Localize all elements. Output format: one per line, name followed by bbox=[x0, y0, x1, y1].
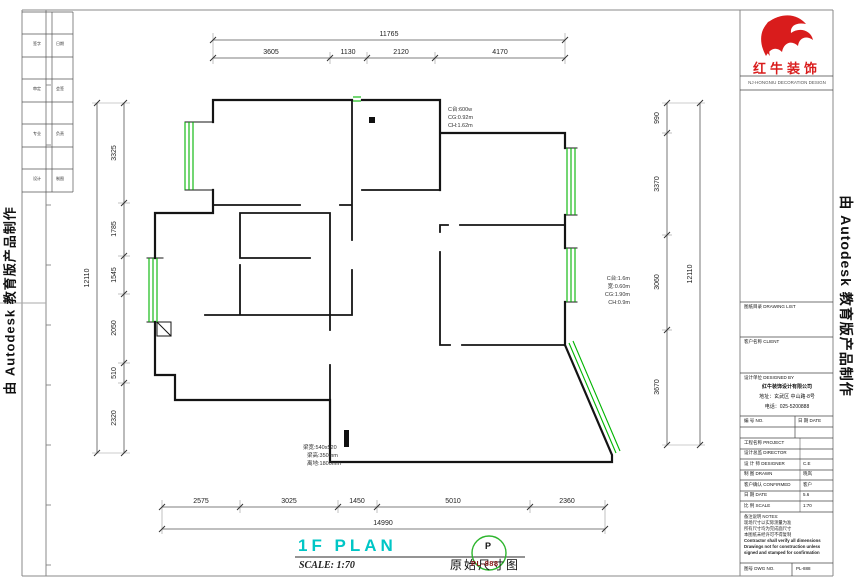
note-line: 现场尺寸以实际测量为准 bbox=[744, 521, 791, 525]
revision-cell: 审定 bbox=[25, 87, 49, 91]
dim-label: 990 bbox=[654, 96, 664, 140]
tb-mini-right: 日 期 DATE bbox=[798, 419, 821, 424]
dim-label: 3060 bbox=[654, 260, 664, 304]
dim-label: 3605 bbox=[253, 49, 289, 56]
brand-subtitle: NJ·HONGNIU DECORATION DESIGN bbox=[743, 81, 831, 86]
dim-label: 2575 bbox=[183, 498, 219, 505]
scale-label: SCALE: 1:70 bbox=[299, 561, 355, 571]
dim-total-left: 12110 bbox=[84, 256, 94, 300]
dim-label: 1785 bbox=[111, 207, 121, 251]
tb-footer-left: 图号 DWG NO. bbox=[744, 567, 775, 572]
dim-label: 2360 bbox=[549, 498, 585, 505]
tb-row-label: 工程名称 PROJECT bbox=[744, 441, 784, 446]
tb-row-value: 客户 bbox=[803, 483, 812, 488]
company-phone: 电话：025-5200888 bbox=[744, 405, 830, 410]
beam-annotation-line: 梁宽:540x520 bbox=[303, 446, 337, 452]
tb-row-label: 比 例 SCALE bbox=[744, 504, 770, 509]
note-line: signed and stamped for confirmation bbox=[744, 551, 820, 555]
tb-footer-right: PL-888 bbox=[796, 567, 811, 572]
tb-row-label: 制 图 DRAWN bbox=[744, 472, 772, 477]
dim-label: 2050 bbox=[111, 306, 121, 350]
tb-section-label: 设计单位 DESIGNED BY bbox=[744, 376, 794, 381]
tb-row-label: 日 期 DATE bbox=[744, 493, 767, 498]
note-line: 所有尺寸均为完成面尺寸 bbox=[744, 527, 791, 531]
note-line: Contractor shall verify all dimensions bbox=[744, 539, 821, 543]
revision-cell: 专业 bbox=[25, 132, 49, 136]
tb-row-label: 设计总监 DIRECTOR bbox=[744, 451, 787, 456]
window-annotation-line: CG:0.92m bbox=[448, 116, 473, 122]
dim-total-bottom: 14990 bbox=[365, 520, 401, 527]
brand-name: 红牛装饰 bbox=[743, 62, 831, 75]
revision-cell: 制图 bbox=[50, 177, 70, 181]
dim-label: 1545 bbox=[111, 253, 121, 297]
tb-section-label: 图纸目录 DRAWING LIST bbox=[744, 305, 796, 310]
floor-plan-walls bbox=[147, 100, 612, 462]
dim-label: 3025 bbox=[271, 498, 307, 505]
window-annotation-line: CH:1.62m bbox=[448, 124, 473, 130]
revision-cell: 日期 bbox=[50, 42, 70, 46]
stamp-letter: P bbox=[485, 542, 491, 551]
dim-label: 3370 bbox=[654, 162, 664, 206]
window-annotation-line: C台:600w bbox=[448, 108, 472, 114]
note-line: Drawings not for construction unless bbox=[744, 545, 820, 549]
window-annotation-line: CH:0.9m bbox=[596, 301, 630, 307]
drawing-sheet: 由 Autodesk 教育版产品制作 由 Autodesk 教育版产品制作 签字… bbox=[0, 0, 860, 580]
revision-cell: 负责 bbox=[50, 132, 70, 136]
stamp-code: PL-888 bbox=[471, 560, 499, 568]
autodesk-watermark-left: 由 Autodesk 教育版产品制作 bbox=[4, 161, 17, 441]
dim-label: 1130 bbox=[330, 49, 366, 56]
tb-row-value: C.E bbox=[803, 462, 811, 467]
tb-row-value: 1:70 bbox=[803, 504, 812, 509]
beam-annotation-line: 梁高:350mm bbox=[307, 454, 338, 460]
revision-table-grid bbox=[22, 12, 73, 192]
revision-cell: 签字 bbox=[25, 42, 49, 46]
cad-linework bbox=[0, 0, 860, 580]
dim-total-right: 12110 bbox=[687, 252, 697, 296]
window-annotation-line: C台:1.6m bbox=[596, 277, 630, 283]
tb-row-value: 5.6 bbox=[803, 493, 809, 498]
tb-row-label: 客户确认 CONFIRMED bbox=[744, 483, 791, 488]
revision-cell: 设计 bbox=[25, 177, 49, 181]
revision-cell: 会签 bbox=[50, 87, 70, 91]
note-line: 本图纸未经许可不得复制 bbox=[744, 533, 791, 537]
dim-label: 2320 bbox=[111, 396, 121, 440]
dim-label: 3325 bbox=[111, 131, 121, 175]
dim-total-top: 11765 bbox=[371, 31, 407, 38]
dim-label: 3670 bbox=[654, 365, 664, 409]
title-block-grid bbox=[740, 76, 833, 576]
tb-row-value: 晓岚 bbox=[803, 472, 812, 477]
tb-row-label: 设 计 师 DESIGNER bbox=[744, 462, 785, 467]
bull-logo-icon bbox=[761, 15, 813, 56]
dim-label: 2120 bbox=[383, 49, 419, 56]
tb-section-label: 客户名称 CLIENT bbox=[744, 340, 779, 345]
beam-annotation-line: 离地:1800mm bbox=[307, 462, 341, 468]
notes-title: 备注说明 NOTES: bbox=[744, 515, 778, 519]
window-annotation-line: CG:1.90m bbox=[596, 293, 630, 299]
dim-label: 510 bbox=[111, 351, 121, 395]
dim-label: 1450 bbox=[339, 498, 375, 505]
dim-label: 4170 bbox=[482, 49, 518, 56]
autodesk-watermark-right: 由 Autodesk 教育版产品制作 bbox=[839, 126, 853, 466]
company-address: 地址：玄武区 中山路·8号 bbox=[744, 395, 830, 400]
tb-mini-left: 编 号 NO. bbox=[744, 419, 764, 424]
dim-label: 5010 bbox=[435, 498, 471, 505]
plan-title: 1F PLAN bbox=[298, 537, 397, 554]
company-name: 红牛装饰设计有限公司 bbox=[744, 385, 830, 390]
window-annotation-line: 宽:0.60m bbox=[596, 285, 630, 291]
